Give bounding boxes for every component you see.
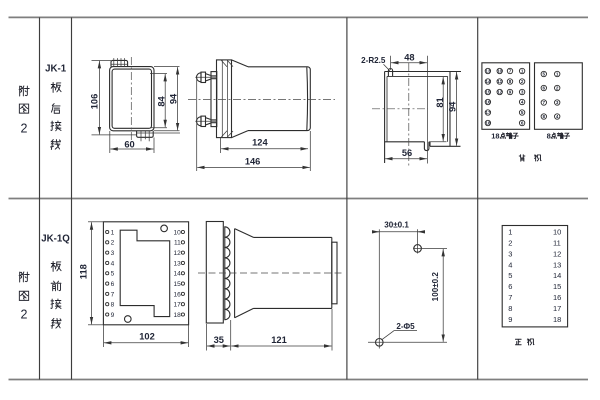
svg-text:JK-1Q: JK-1Q: [41, 234, 70, 245]
svg-text:100±0.2: 100±0.2: [431, 272, 440, 302]
svg-text:5: 5: [508, 271, 512, 280]
svg-text:124: 124: [252, 138, 268, 148]
svg-text:2: 2: [508, 238, 512, 247]
svg-text:14: 14: [173, 271, 181, 278]
svg-text:JK-1: JK-1: [45, 63, 67, 74]
svg-text:14: 14: [485, 79, 491, 84]
svg-text:18: 18: [485, 121, 491, 126]
svg-text:8: 8: [508, 304, 512, 313]
svg-text:16: 16: [173, 291, 181, 298]
svg-text:56: 56: [402, 148, 412, 158]
svg-text:9: 9: [111, 312, 115, 319]
svg-text:60: 60: [124, 140, 134, 150]
svg-text:4: 4: [111, 260, 115, 267]
svg-text:13: 13: [553, 260, 561, 269]
svg-text:2-Φ5: 2-Φ5: [396, 322, 415, 331]
svg-text:15: 15: [553, 282, 561, 291]
svg-text:15: 15: [173, 281, 181, 288]
svg-text:9: 9: [509, 90, 512, 95]
svg-text:18: 18: [553, 315, 561, 324]
svg-text:6: 6: [508, 282, 512, 291]
svg-text:5: 5: [111, 271, 115, 278]
svg-text:6: 6: [111, 281, 115, 288]
svg-text:5: 5: [543, 72, 546, 77]
svg-text:106: 106: [90, 94, 100, 110]
svg-text:10: 10: [553, 228, 561, 237]
svg-text:12: 12: [497, 90, 503, 95]
svg-text:17: 17: [173, 302, 181, 309]
svg-text:4: 4: [521, 100, 524, 105]
svg-text:48: 48: [404, 52, 414, 62]
svg-text:2: 2: [556, 86, 559, 91]
svg-text:13: 13: [485, 69, 491, 74]
svg-text:2-R2.5: 2-R2.5: [361, 56, 386, 65]
svg-text:14: 14: [553, 271, 561, 280]
svg-text:7: 7: [111, 291, 115, 298]
svg-text:1: 1: [521, 69, 524, 74]
svg-text:8: 8: [543, 114, 546, 119]
svg-text:18: 18: [491, 131, 499, 140]
svg-text:8: 8: [547, 131, 551, 140]
svg-text:2: 2: [521, 79, 524, 84]
svg-text:16: 16: [485, 100, 491, 105]
svg-text:2: 2: [21, 308, 28, 322]
svg-text:6: 6: [543, 86, 546, 91]
svg-text:10: 10: [173, 229, 181, 236]
svg-text:8: 8: [509, 79, 512, 84]
svg-text:17: 17: [553, 304, 561, 313]
svg-text:146: 146: [245, 156, 261, 166]
svg-text:1: 1: [111, 229, 115, 236]
svg-text:94: 94: [169, 93, 179, 104]
svg-text:8: 8: [111, 302, 115, 309]
svg-text:18: 18: [173, 312, 181, 319]
svg-text:9: 9: [508, 315, 512, 324]
svg-text:1: 1: [508, 228, 512, 237]
svg-text:2: 2: [111, 240, 115, 247]
svg-text:5: 5: [521, 110, 524, 115]
svg-text:16: 16: [553, 293, 561, 302]
svg-text:6: 6: [521, 121, 524, 126]
svg-text:30±0.1: 30±0.1: [384, 221, 409, 230]
svg-text:17: 17: [485, 110, 491, 115]
svg-text:4: 4: [556, 114, 559, 119]
svg-text:94: 94: [448, 101, 458, 112]
svg-text:81: 81: [435, 97, 445, 107]
svg-text:118: 118: [79, 264, 89, 279]
svg-text:7: 7: [508, 293, 512, 302]
svg-text:12: 12: [553, 249, 561, 258]
svg-text:15: 15: [485, 90, 491, 95]
svg-text:11: 11: [174, 240, 181, 247]
svg-text:3: 3: [521, 90, 524, 95]
svg-text:4: 4: [508, 260, 512, 269]
svg-text:11: 11: [553, 238, 561, 247]
svg-text:7: 7: [543, 100, 546, 105]
svg-text:7: 7: [509, 69, 512, 74]
svg-text:3: 3: [556, 100, 559, 105]
svg-text:11: 11: [497, 79, 502, 84]
svg-text:2: 2: [21, 121, 28, 135]
svg-text:12: 12: [173, 250, 181, 257]
svg-text:3: 3: [111, 250, 115, 257]
svg-text:3: 3: [508, 249, 512, 258]
svg-text:102: 102: [139, 332, 155, 342]
svg-text:35: 35: [214, 335, 224, 345]
svg-text:1: 1: [556, 72, 559, 77]
svg-text:121: 121: [271, 335, 287, 345]
svg-text:13: 13: [173, 260, 181, 267]
svg-text:10: 10: [497, 69, 503, 74]
svg-text:84: 84: [156, 96, 166, 107]
